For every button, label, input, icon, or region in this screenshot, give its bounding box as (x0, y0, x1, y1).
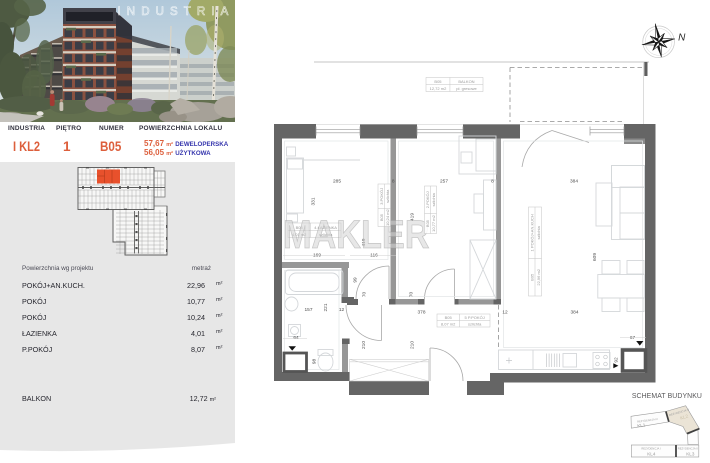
svg-text:10,24 m2: 10,24 m2 (385, 208, 390, 225)
svg-text:157: 157 (304, 307, 312, 313)
svg-text:SCHEMAT BUDYNKU: SCHEMAT BUDYNKU (632, 393, 702, 400)
svg-text:KL1: KL1 (637, 422, 646, 428)
svg-text:B05: B05 (425, 219, 430, 227)
svg-text:257: 257 (440, 179, 448, 185)
svg-text:pł. gresowe: pł. gresowe (456, 86, 477, 91)
svg-text:REZYDENCJA I: REZYDENCJA I (641, 446, 661, 450)
svg-text:1 POKÓJ+AN.KUCH: 1 POKÓJ+AN.KUCH (530, 214, 535, 251)
svg-text:szlichta: szlichta (468, 322, 482, 327)
svg-text:KL3: KL3 (686, 451, 695, 456)
svg-text:12: 12 (339, 307, 345, 313)
svg-text:5 P.POKÓJ: 5 P.POKÓJ (465, 315, 485, 320)
svg-text:378: 378 (417, 310, 425, 316)
svg-text:384: 384 (570, 310, 578, 316)
svg-text:384: 384 (570, 179, 578, 185)
svg-text:331: 331 (311, 197, 317, 205)
svg-text:N: N (678, 32, 686, 43)
svg-text:REZYDENCJA II: REZYDENCJA II (678, 446, 698, 450)
svg-text:67: 67 (630, 335, 636, 341)
svg-text:3.POKÓJ: 3.POKÓJ (379, 188, 384, 205)
svg-text:8,07 m2: 8,07 m2 (441, 322, 456, 327)
svg-text:221: 221 (323, 303, 329, 311)
svg-text:MAKLER: MAKLER (283, 213, 430, 257)
svg-text:B05: B05 (434, 79, 442, 84)
svg-text:szlichta: szlichta (431, 192, 436, 206)
svg-text:22,96 m2: 22,96 m2 (536, 268, 541, 285)
svg-text:10,77 m2: 10,77 m2 (431, 214, 436, 231)
svg-text:BALKON: BALKON (458, 79, 474, 84)
svg-text:12: 12 (502, 310, 508, 316)
svg-text:609: 609 (592, 253, 598, 261)
svg-text:B05: B05 (530, 273, 535, 281)
svg-text:64: 64 (293, 335, 299, 341)
svg-text:98: 98 (312, 359, 318, 365)
svg-text:KL4: KL4 (647, 451, 656, 456)
svg-text:12,72 m2: 12,72 m2 (430, 86, 447, 91)
svg-text:210: 210 (410, 341, 416, 349)
svg-text:8: 8 (491, 179, 494, 185)
svg-text:szlichta: szlichta (385, 189, 390, 203)
svg-text:2.POKÓJ: 2.POKÓJ (425, 191, 430, 208)
svg-text:210: 210 (361, 341, 367, 349)
svg-text:szlichta: szlichta (536, 225, 541, 239)
svg-text:285: 285 (333, 179, 341, 185)
svg-text:70: 70 (362, 292, 368, 298)
svg-text:92: 92 (614, 357, 620, 363)
svg-text:B05: B05 (379, 213, 384, 221)
svg-text:99: 99 (353, 277, 359, 283)
svg-text:70: 70 (409, 292, 415, 298)
svg-text:8: 8 (392, 179, 395, 185)
svg-text:B05: B05 (445, 315, 453, 320)
